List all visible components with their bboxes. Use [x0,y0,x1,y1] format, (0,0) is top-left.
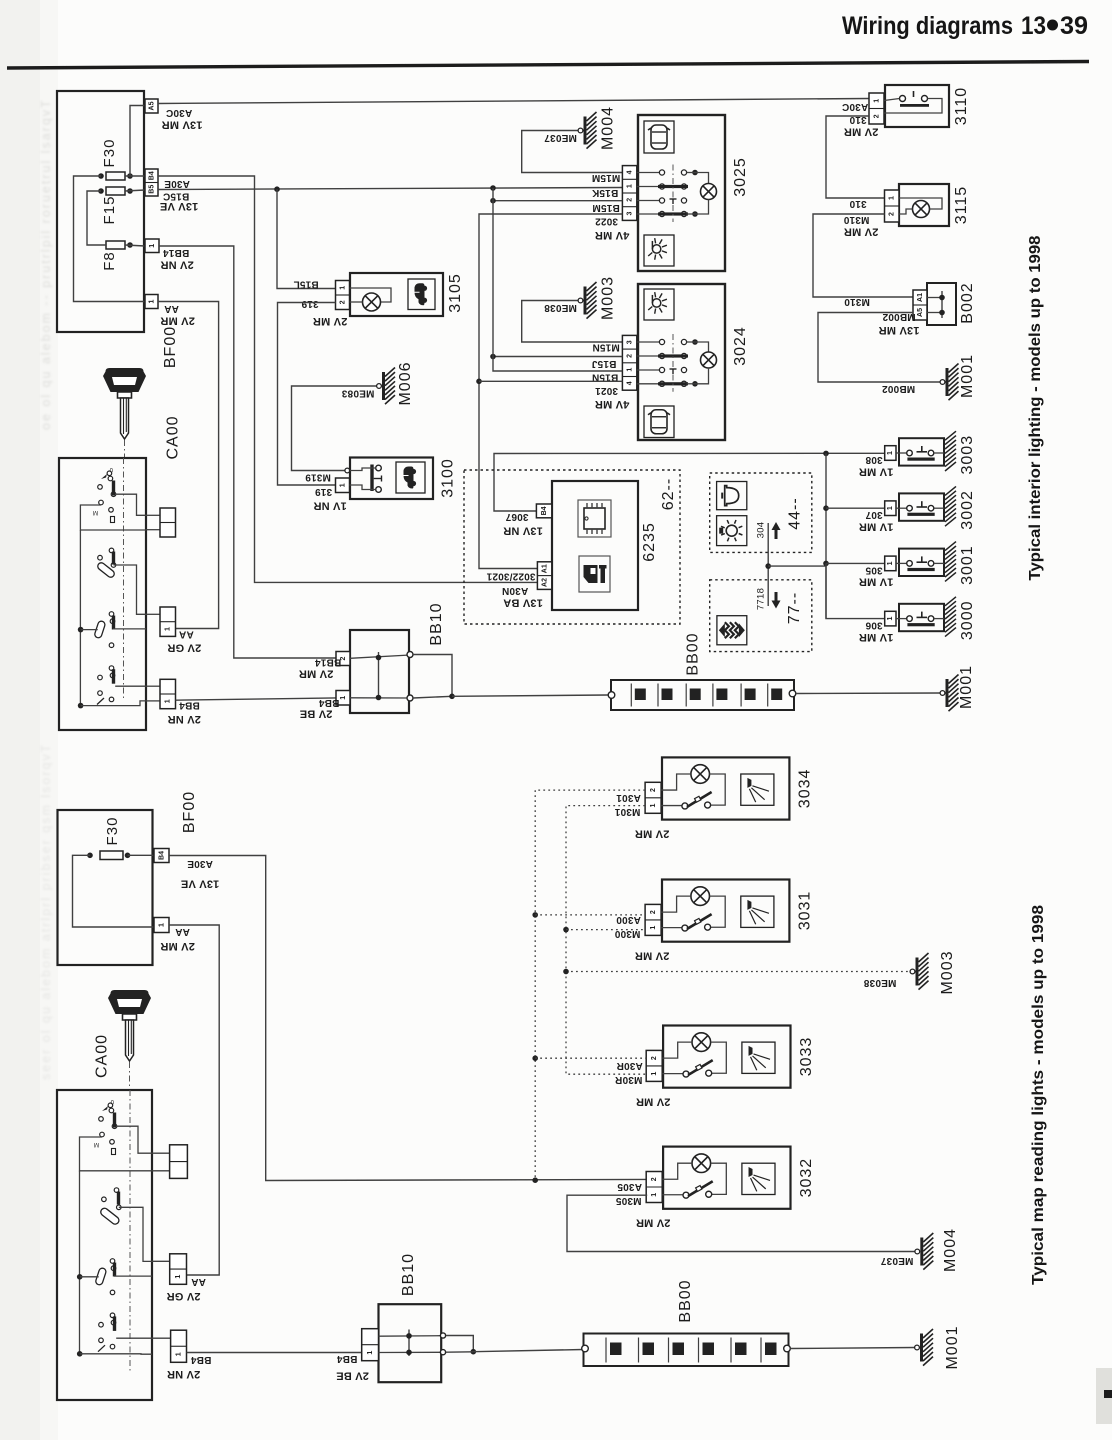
svg-text:BB14: BB14 [163,247,190,258]
svg-text:1: 1 [165,699,172,703]
svg-text:1: 1 [651,1193,658,1197]
svg-text:BF00: BF00 [181,791,198,833]
svg-text:ME083: ME083 [341,387,374,398]
svg-text:305: 305 [865,564,883,575]
svg-text:2V MR: 2V MR [636,1217,671,1229]
svg-text:B4: B4 [148,171,155,180]
svg-text:13V NR: 13V NR [503,525,543,537]
svg-text:1V MR: 1V MR [859,520,894,532]
svg-text:3: 3 [626,340,633,344]
svg-text:A5: A5 [148,101,155,110]
svg-text:1: 1 [650,804,657,808]
svg-text:2: 2 [626,198,633,202]
svg-text:2V GR: 2V GR [166,1290,200,1302]
svg-text:3000: 3000 [959,601,976,641]
svg-text:2V MR: 2V MR [160,315,195,327]
svg-text:BB4: BB4 [190,1354,211,1365]
svg-text:A30E: A30E [187,858,213,869]
svg-text:2V GR: 2V GR [167,642,201,654]
svg-text:13: 13 [1021,12,1046,40]
svg-text:1: 1 [651,1072,658,1076]
svg-text:BB10: BB10 [400,1253,417,1296]
svg-text:A30E: A30E [164,178,190,189]
svg-text:2V MR: 2V MR [635,827,670,839]
svg-text:1: 1 [889,196,896,200]
svg-text:1: 1 [339,286,346,290]
svg-text:M15M: M15M [592,172,621,183]
svg-text:M: M [94,1141,99,1147]
svg-text:M001: M001 [959,354,976,398]
svg-text:A30R: A30R [616,1060,643,1071]
svg-text:BB4: BB4 [179,699,200,710]
svg-text:A1: A1 [541,564,548,573]
svg-text:3110: 3110 [953,87,970,125]
svg-text:Typical map reading lights - m: Typical map reading lights - models up t… [1030,905,1047,1285]
svg-text:1: 1 [340,696,347,700]
svg-text:1: 1 [887,506,894,510]
svg-text:1: 1 [165,627,172,631]
svg-text:2V NR: 2V NR [167,1368,200,1380]
svg-text:B002: B002 [959,282,976,323]
svg-text:2V MR: 2V MR [844,126,879,138]
svg-text:7718: 7718 [756,588,767,610]
svg-text:13V BA: 13V BA [503,597,543,609]
svg-text:1: 1 [626,368,633,372]
svg-text:1: 1 [626,184,633,188]
svg-text:A305: A305 [617,1181,642,1192]
svg-text:Wiring diagrams: Wiring diagrams [842,12,1013,40]
svg-text:1: 1 [149,244,156,248]
svg-text:1: 1 [887,451,894,455]
svg-text:BB10: BB10 [428,602,445,645]
svg-text:1: 1 [175,1352,182,1356]
svg-text:77--: 77-- [786,592,803,624]
svg-text:2: 2 [651,1056,658,1060]
svg-text:A2: A2 [541,578,548,587]
svg-text:M003: M003 [600,276,617,320]
svg-text:2V MR: 2V MR [299,668,334,680]
svg-text:319: 319 [315,486,333,497]
svg-text:62--: 62-- [660,478,677,510]
svg-text:M004: M004 [600,106,617,150]
svg-text:AA: AA [175,926,190,937]
svg-text:A30C: A30C [842,101,868,112]
svg-text:BB00: BB00 [677,1279,694,1322]
svg-text:B15K: B15K [591,187,618,198]
svg-text:3105: 3105 [447,273,464,313]
svg-text:A5: A5 [917,308,924,317]
svg-text:307: 307 [865,509,883,520]
svg-text:1: 1 [873,99,880,103]
svg-text:M310: M310 [844,296,870,307]
svg-text:ME037: ME037 [880,1255,913,1266]
svg-text:1: 1 [158,923,165,927]
svg-text:M30R: M30R [614,1074,642,1085]
svg-text:2V MR: 2V MR [635,950,670,962]
svg-text:44--: 44-- [787,497,804,529]
svg-text:AA: AA [179,628,194,639]
svg-text:2: 2 [650,910,657,914]
svg-text:1: 1 [650,926,657,930]
svg-text:ME038: ME038 [863,977,896,988]
svg-text:2V NR: 2V NR [167,713,200,725]
svg-text:3067: 3067 [505,511,528,522]
svg-text:13V MR: 13V MR [879,324,920,336]
svg-text:F15: F15 [101,196,118,225]
svg-text:1V NR: 1V NR [313,500,346,512]
svg-text:A1: A1 [917,293,924,302]
svg-text:M001: M001 [958,665,975,709]
svg-text:2V MR: 2V MR [313,315,348,327]
svg-text:CA00: CA00 [165,415,182,459]
svg-text:M004: M004 [942,1228,959,1272]
svg-text:3032: 3032 [798,1158,815,1198]
svg-text:308: 308 [865,454,883,465]
svg-text:seer ol qu alebom atrlprl pri: seer ol qu alebom atrlprl pribser qsm ls… [39,743,53,1080]
svg-text:F30: F30 [104,817,121,846]
svg-text:BB00: BB00 [685,632,702,675]
svg-text:M301: M301 [614,806,640,817]
svg-text:B5: B5 [148,185,155,194]
svg-text:13V VE: 13V VE [181,878,220,890]
svg-text:304: 304 [756,522,767,539]
svg-text:M: M [93,509,98,515]
svg-text:306: 306 [865,619,883,630]
svg-text:3034: 3034 [797,769,814,809]
svg-text:1: 1 [339,483,346,487]
svg-text:ME038: ME038 [544,302,577,313]
svg-text:AA: AA [191,1276,206,1287]
svg-text:3100: 3100 [440,458,457,498]
svg-text:BB14: BB14 [315,656,342,667]
svg-text:oe ol qu alebom -- prutrlpil r: oe ol qu alebom -- prutrlpil roruetrul l… [39,98,53,430]
svg-text:ME037: ME037 [544,132,577,143]
svg-text:1V MR: 1V MR [859,465,894,477]
svg-text:1V MR: 1V MR [859,631,894,643]
svg-text:3003: 3003 [959,435,976,475]
svg-text:2: 2 [889,212,896,216]
svg-text:1V MR: 1V MR [859,576,894,588]
svg-text:2V BE: 2V BE [300,708,333,720]
svg-text:6235: 6235 [641,522,658,562]
svg-text:3021: 3021 [595,385,618,396]
svg-text:3024: 3024 [732,326,749,366]
svg-text:M006: M006 [397,361,414,405]
svg-text:4: 4 [626,170,633,174]
svg-text:BF00: BF00 [162,326,179,368]
svg-text:13V MR: 13V MR [162,119,203,131]
svg-text:2V MR: 2V MR [636,1096,671,1108]
svg-text:M305: M305 [615,1195,641,1206]
svg-text:Typical interior lighting - mo: Typical interior lighting - models up to… [1027,235,1044,580]
svg-text:BB4: BB4 [336,1353,357,1364]
svg-text:A30N: A30N [502,585,528,596]
svg-text:1: 1 [175,1275,182,1279]
svg-text:2: 2 [650,788,657,792]
svg-text:M15N: M15N [592,342,619,353]
svg-text:MB002: MB002 [882,383,915,394]
svg-text:3002: 3002 [959,490,976,530]
svg-text:310: 310 [849,198,867,209]
svg-text:2V NR: 2V NR [160,259,193,271]
svg-text:3022: 3022 [595,215,618,226]
svg-text:319: 319 [301,298,319,309]
svg-text:B15M: B15M [592,202,619,213]
svg-text:AA: AA [164,303,179,314]
svg-text:4V MR: 4V MR [595,398,630,410]
svg-text:CA00: CA00 [94,1034,111,1078]
svg-text:A301: A301 [616,792,641,803]
svg-text:M001: M001 [944,1325,961,1369]
svg-text:2: 2 [339,300,346,304]
svg-text:3033: 3033 [798,1037,815,1077]
svg-text:B4: B4 [541,506,548,515]
svg-text:3031: 3031 [797,891,814,931]
svg-text:2V MR: 2V MR [160,940,195,952]
svg-text:M003: M003 [939,950,956,994]
svg-text:3022/3021: 3022/3021 [486,570,535,581]
svg-text:M319: M319 [305,471,331,482]
svg-text:4: 4 [626,381,633,385]
svg-text:2V BE: 2V BE [336,1370,369,1382]
svg-text:1: 1 [887,561,894,565]
svg-text:2: 2 [626,354,633,358]
svg-text:F30: F30 [101,139,118,168]
svg-text:2: 2 [651,1177,658,1181]
svg-text:B15J: B15J [592,358,617,369]
svg-text:2V MR: 2V MR [844,226,879,238]
svg-text:3: 3 [626,212,633,216]
svg-text:A300: A300 [616,914,641,925]
svg-text:B15C: B15C [163,190,189,201]
svg-text:1: 1 [148,299,155,303]
svg-text:3001: 3001 [959,545,976,585]
svg-text:3025: 3025 [732,157,749,197]
svg-text:39: 39 [1060,12,1088,40]
svg-text:1: 1 [367,1351,374,1355]
svg-text:2: 2 [873,114,880,118]
svg-text:F8: F8 [101,251,118,271]
svg-text:B15L: B15L [293,278,318,289]
svg-text:4V MR: 4V MR [595,229,630,241]
svg-text:M310: M310 [843,214,869,225]
svg-text:BB4: BB4 [318,697,339,708]
svg-text:A30C: A30C [166,107,192,118]
svg-text:3115: 3115 [953,186,970,224]
svg-text:1: 1 [887,617,894,621]
svg-text:B4: B4 [158,851,165,860]
